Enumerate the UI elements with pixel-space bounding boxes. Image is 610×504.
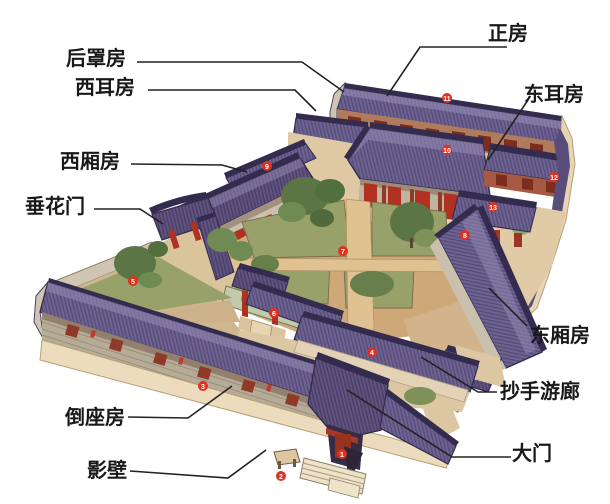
svg-text:倒座房: 倒座房 [64, 405, 125, 429]
svg-text:东厢房: 东厢房 [530, 323, 590, 347]
svg-text:12: 12 [550, 175, 558, 182]
svg-text:11: 11 [443, 96, 451, 103]
svg-text:抄手游廊: 抄手游廊 [500, 379, 580, 403]
svg-text:7: 7 [341, 249, 345, 256]
svg-text:5: 5 [131, 279, 135, 286]
svg-text:西耳房: 西耳房 [75, 75, 135, 99]
svg-text:3: 3 [201, 384, 205, 391]
svg-text:8: 8 [463, 233, 467, 240]
svg-text:10: 10 [443, 148, 451, 155]
svg-text:大门: 大门 [512, 441, 552, 465]
svg-text:9: 9 [265, 164, 269, 171]
svg-text:正房: 正房 [488, 21, 528, 45]
svg-text:1: 1 [340, 452, 344, 459]
svg-text:4: 4 [370, 350, 374, 357]
svg-text:2: 2 [279, 474, 283, 481]
svg-text:垂花门: 垂花门 [25, 194, 85, 218]
svg-text:影壁: 影壁 [87, 458, 127, 482]
svg-text:6: 6 [272, 311, 276, 318]
svg-text:后罩房: 后罩房 [66, 46, 126, 70]
svg-text:西厢房: 西厢房 [60, 149, 120, 173]
svg-text:东耳房: 东耳房 [524, 82, 584, 106]
svg-text:13: 13 [489, 205, 497, 212]
